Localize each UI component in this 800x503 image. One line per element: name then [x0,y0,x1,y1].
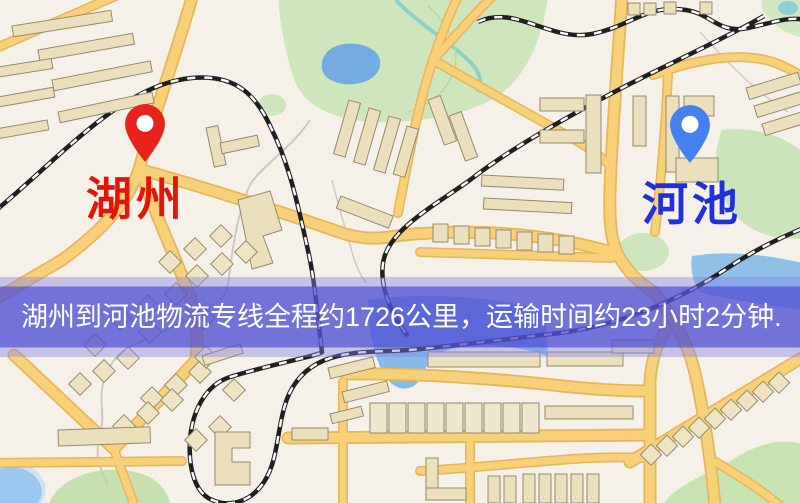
origin-pin-icon[interactable] [123,102,167,164]
map-view: 湖州到河池物流专线全程约1726公里，运输时间约23小时2分钟. 湖州 河池 [0,0,800,503]
destination-pin-icon[interactable] [668,103,712,165]
origin-label: 湖州 [86,176,186,222]
map-canvas[interactable] [0,0,800,503]
destination-label: 河池 [642,181,742,227]
route-banner-text: 湖州到河池物流专线全程约1726公里，运输时间约23小时2分钟. [0,277,800,357]
route-info-banner: 湖州到河池物流专线全程约1726公里，运输时间约23小时2分钟. [0,277,800,357]
